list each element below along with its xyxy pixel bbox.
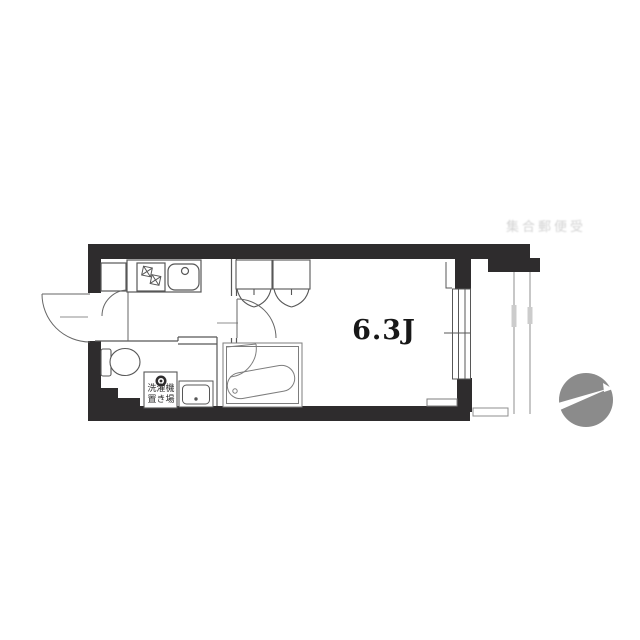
balcony [427, 272, 533, 416]
wall-step-b [95, 398, 140, 421]
balcony-step [473, 408, 508, 416]
compass-circle [559, 373, 613, 427]
closet-panel [236, 260, 272, 289]
toilet-bowl [110, 349, 140, 376]
wall-top [88, 244, 530, 259]
drain-icon [195, 398, 197, 400]
wall-notch [427, 399, 457, 406]
entrance-door-swing [42, 294, 90, 342]
compass [558, 373, 613, 427]
laundry-label-line2: 置き場 [143, 394, 179, 405]
entrance-door [42, 294, 90, 342]
window-frame [453, 289, 471, 379]
closet-fold-ticks [254, 289, 292, 295]
shoe-cabinet [101, 263, 126, 291]
wall-left-upper [88, 244, 101, 293]
balcony-divider [512, 305, 517, 327]
wall-top-right-tab [488, 258, 540, 272]
floor-plan-image: 集合郵便受 6.3J 洗濯機 置き場 [0, 0, 640, 640]
washbasin [179, 381, 213, 407]
closet-panel [273, 260, 310, 289]
wall-inner-line [446, 262, 452, 288]
washbasin-bowl [183, 385, 210, 404]
laundry-area-label: 洗濯機 置き場 [143, 383, 179, 404]
washroom-door [102, 289, 128, 341]
balcony-railing [514, 272, 530, 414]
washroom-door-swing [102, 290, 128, 316]
toilet [101, 349, 140, 377]
hall-room-divider-stub [232, 338, 237, 343]
balcony-divider [528, 307, 533, 324]
bathroom [223, 343, 302, 407]
floor-plan-drawing [0, 0, 640, 640]
faint-header-text: 集合郵便受 [498, 216, 594, 235]
room-size-label: 6.3J [348, 315, 420, 346]
room-door-swing [237, 299, 276, 338]
wall-right-above-window [455, 259, 471, 290]
kitchen-counter [127, 260, 201, 292]
tick-marks [60, 317, 238, 323]
room-door [237, 299, 276, 338]
water-tap-icon-dot [160, 380, 163, 383]
laundry-label-line1: 洗濯機 [143, 383, 179, 394]
